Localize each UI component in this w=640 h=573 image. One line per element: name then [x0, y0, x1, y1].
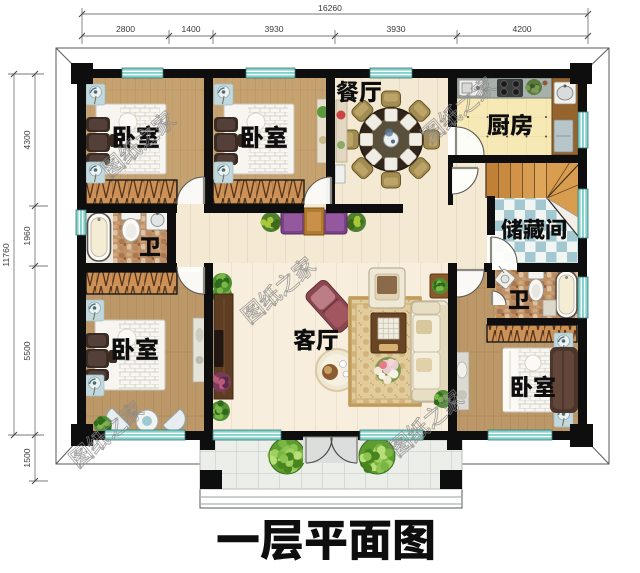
- svg-text:3930: 3930: [386, 24, 405, 34]
- svg-text:1400: 1400: [181, 24, 200, 34]
- svg-text:3930: 3930: [264, 24, 283, 34]
- svg-text:16260: 16260: [318, 3, 342, 13]
- svg-text:4200: 4200: [512, 24, 531, 34]
- svg-text:2800: 2800: [116, 24, 135, 34]
- svg-text:1960: 1960: [22, 226, 32, 245]
- svg-text:4300: 4300: [22, 130, 32, 149]
- svg-text:1500: 1500: [22, 448, 32, 467]
- svg-text:11760: 11760: [1, 243, 11, 266]
- svg-text:5500: 5500: [22, 341, 32, 360]
